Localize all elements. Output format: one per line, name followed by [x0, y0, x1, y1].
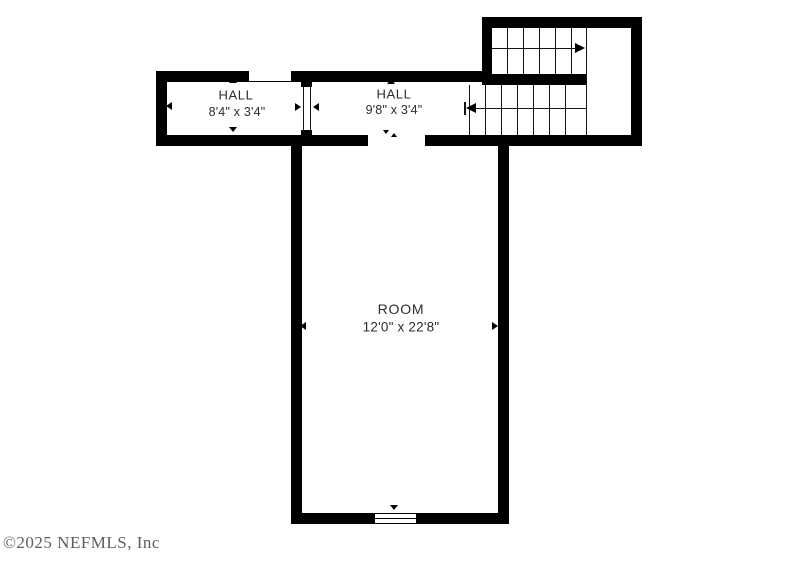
stair-tread-line: [533, 85, 534, 135]
hall2-label: HALL: [377, 87, 412, 102]
wall-room-bottom-left-segment: [291, 513, 374, 524]
dim-marker-up-icon: [229, 78, 237, 83]
dim-marker-right-icon: [295, 103, 301, 111]
dim-marker-down-icon: [229, 127, 237, 132]
dim-marker-down-icon: [390, 505, 398, 510]
wall-hall-bottom-left-segment: [156, 135, 368, 146]
wall-hall-bottom-right-segment: [425, 135, 642, 146]
dim-marker-left-icon: [313, 103, 319, 111]
room-dimensions: 12'0" x 22'8": [363, 320, 440, 335]
stair-tread-line: [565, 85, 566, 135]
stair-upper-arrow-icon: [575, 43, 585, 53]
wall-room-right: [498, 135, 509, 524]
wall-stair-top: [482, 17, 642, 28]
room-label: ROOM: [378, 301, 425, 317]
window-symbol: [374, 513, 417, 524]
stair-tread-line: [501, 85, 502, 135]
stair-tread-line: [507, 28, 508, 74]
opening-marker-down-icon: [383, 130, 389, 134]
stair-tread-line: [523, 28, 524, 74]
stair-tread-line: [539, 28, 540, 74]
door-jamb-line-left: [303, 87, 304, 130]
hall1-dimensions: 8'4" x 3'4": [209, 105, 266, 119]
stair-tread-line: [517, 85, 518, 135]
stair-tread-line: [485, 85, 486, 135]
doorway-opening-hall-top: [248, 71, 292, 82]
stair-tread-line: [571, 28, 572, 74]
dim-marker-left-icon: [166, 102, 172, 110]
stair-lower-arrow-line: [476, 108, 586, 109]
hall1-label: HALL: [219, 88, 254, 103]
wall-room-bottom-right-segment: [417, 513, 509, 524]
wall-stair-divider: [482, 74, 587, 85]
stair-upper-arrow-line: [492, 48, 576, 49]
window-mid-line: [375, 518, 416, 519]
hall2-dimensions: 9'8" x 3'4": [366, 103, 423, 117]
wall-interhall-stub-bottom: [301, 130, 312, 146]
stair-lower-arrow-tick: [464, 102, 466, 115]
dim-marker-left-icon: [300, 322, 306, 330]
dim-marker-right-icon: [492, 322, 498, 330]
door-jamb-line-right: [310, 87, 311, 130]
watermark: ©2025 NEFMLS, Inc: [3, 533, 160, 553]
opening-marker-up-icon: [391, 133, 397, 137]
stair-lower-arrow-icon: [466, 103, 476, 113]
stair-tread-line: [555, 28, 556, 74]
wall-stair-right: [631, 17, 642, 146]
stair-tread-line: [549, 85, 550, 135]
dim-marker-up-icon: [387, 79, 395, 84]
floor-plan-canvas: HALL 8'4" x 3'4" HALL 9'8" x 3'4" ROOM 1…: [0, 0, 800, 568]
stair-flight-boundary-line: [586, 28, 587, 135]
wall-interhall-stub-top: [301, 71, 312, 87]
